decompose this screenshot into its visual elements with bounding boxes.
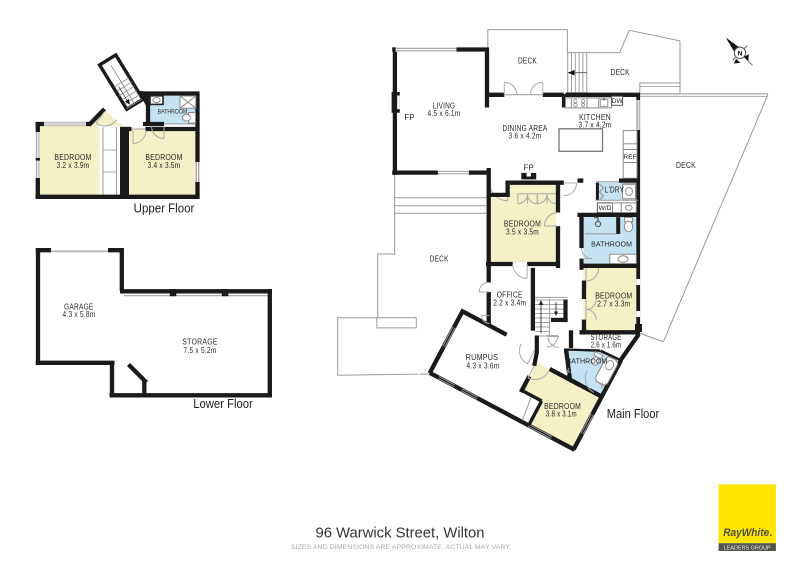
svg-text:3.7 x 4.2m: 3.7 x 4.2m <box>579 120 612 129</box>
svg-text:4.3 x 5.8m: 4.3 x 5.8m <box>63 310 96 319</box>
svg-text:3.6 x 4.2m: 3.6 x 4.2m <box>509 132 542 141</box>
svg-text:LEADERS GROUP: LEADERS GROUP <box>724 545 772 551</box>
svg-text:DECK: DECK <box>676 160 696 170</box>
svg-text:3.4 x 3.5m: 3.4 x 3.5m <box>148 161 181 170</box>
svg-text:REF: REF <box>623 154 636 161</box>
svg-text:N: N <box>738 50 743 57</box>
svg-text:L'DRY: L'DRY <box>605 185 625 194</box>
svg-text:2.6 x 1.6m: 2.6 x 1.6m <box>591 341 622 350</box>
svg-text:BATHROOM: BATHROOM <box>158 108 188 115</box>
svg-text:2.7 x 3.3m: 2.7 x 3.3m <box>597 300 630 309</box>
svg-text:STORAGE: STORAGE <box>182 337 218 347</box>
svg-text:Upper Floor: Upper Floor <box>134 201 195 216</box>
svg-text:96 Warwick Street, Wilton: 96 Warwick Street, Wilton <box>316 525 485 542</box>
svg-text:RayWhite: RayWhite <box>723 527 769 539</box>
svg-text:Lower Floor: Lower Floor <box>193 396 253 411</box>
svg-text:BATHROOM: BATHROOM <box>591 240 632 249</box>
svg-text:7.5 x 5.2m: 7.5 x 5.2m <box>184 346 217 355</box>
svg-text:FP: FP <box>524 163 534 172</box>
svg-text:BATHROOM: BATHROOM <box>567 357 608 366</box>
svg-text:3.5 x 3.5m: 3.5 x 3.5m <box>506 227 539 236</box>
svg-text:DECK: DECK <box>611 67 630 77</box>
svg-text:Main Floor: Main Floor <box>607 406 660 421</box>
svg-text:4.5 x 6.1m: 4.5 x 6.1m <box>428 109 461 118</box>
svg-text:SIZES AND DIMENSIONS ARE APPRO: SIZES AND DIMENSIONS ARE APPROXIMATE, AC… <box>291 544 511 551</box>
svg-text:W/D: W/D <box>599 205 612 212</box>
svg-text:DW: DW <box>612 98 624 105</box>
svg-text:2.2 x 3.4m: 2.2 x 3.4m <box>493 298 526 307</box>
svg-text:FP: FP <box>404 113 414 122</box>
svg-text:DECK: DECK <box>430 254 449 264</box>
svg-text:3.8 x 3.1m: 3.8 x 3.1m <box>546 410 577 419</box>
svg-text:DECK: DECK <box>518 56 537 66</box>
svg-text:3.2 x 3.9m: 3.2 x 3.9m <box>57 161 90 170</box>
svg-text:4.3 x 3.6m: 4.3 x 3.6m <box>467 362 500 371</box>
